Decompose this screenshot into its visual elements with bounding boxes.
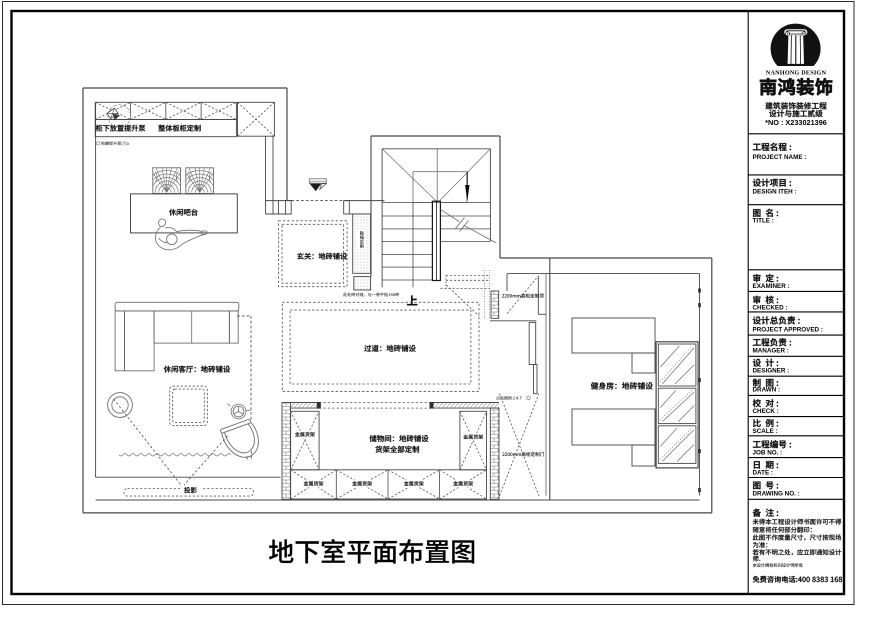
svg-text:DRAWING NO. :: DRAWING NO. : [753, 491, 800, 498]
svg-text:DESIGN ITEH :: DESIGN ITEH : [753, 188, 797, 195]
svg-text:MANAGER :: MANAGER : [753, 348, 789, 355]
svg-text:NANHONG DESIGN: NANHONG DESIGN [766, 69, 827, 76]
svg-text:DATE :: DATE : [753, 470, 774, 477]
svg-text:CHECK :: CHECK : [753, 408, 779, 415]
svg-text:EXAMINER :: EXAMINER : [753, 283, 790, 290]
svg-text:SCALE :: SCALE : [753, 428, 778, 435]
svg-text:TITLE :: TITLE : [753, 218, 774, 225]
svg-text:DESIGNER :: DESIGNER : [753, 368, 790, 375]
svg-text:JOB NO. :: JOB NO. : [753, 450, 783, 457]
svg-text:DRAWN :: DRAWN : [753, 387, 781, 394]
svg-text:PROJECT APPROVED :: PROJECT APPROVED : [753, 326, 823, 333]
svg-text:*NO : X233021396: *NO : X233021396 [765, 118, 827, 127]
svg-text:CHECKED :: CHECKED : [753, 305, 788, 312]
svg-text:PROJECT NAME :: PROJECT NAME : [753, 154, 807, 161]
